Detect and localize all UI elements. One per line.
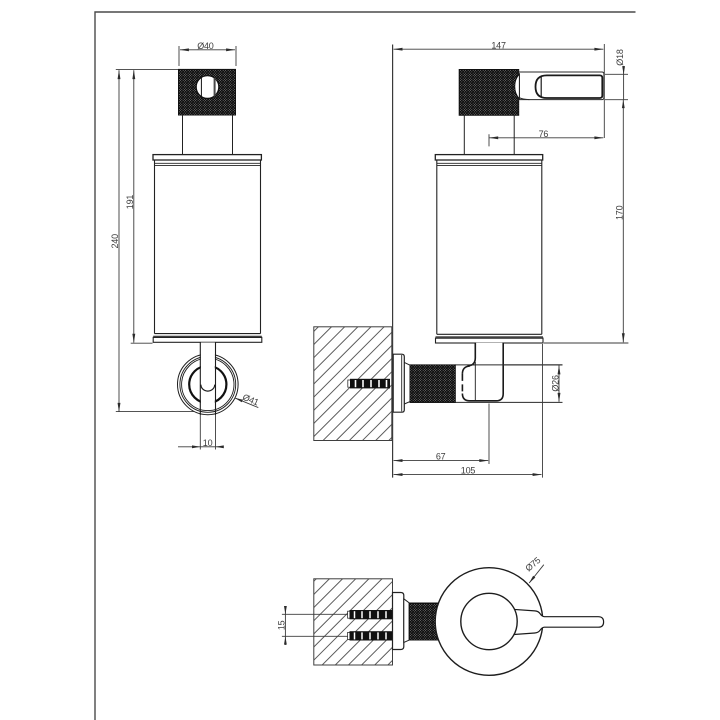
svg-text:76: 76 [539,129,549,139]
svg-text:Ø75: Ø75 [523,555,542,573]
svg-text:147: 147 [491,40,506,50]
svg-text:Ø41: Ø41 [241,392,260,408]
svg-text:67: 67 [436,452,446,462]
svg-text:10: 10 [203,438,213,448]
svg-text:Ø26: Ø26 [551,375,561,392]
svg-text:Ø40: Ø40 [197,41,214,51]
svg-text:Ø18: Ø18 [615,49,625,66]
svg-text:191: 191 [125,195,135,210]
svg-text:105: 105 [461,466,476,476]
svg-text:240: 240 [110,234,120,249]
svg-text:170: 170 [615,205,625,220]
svg-text:15: 15 [277,620,287,630]
